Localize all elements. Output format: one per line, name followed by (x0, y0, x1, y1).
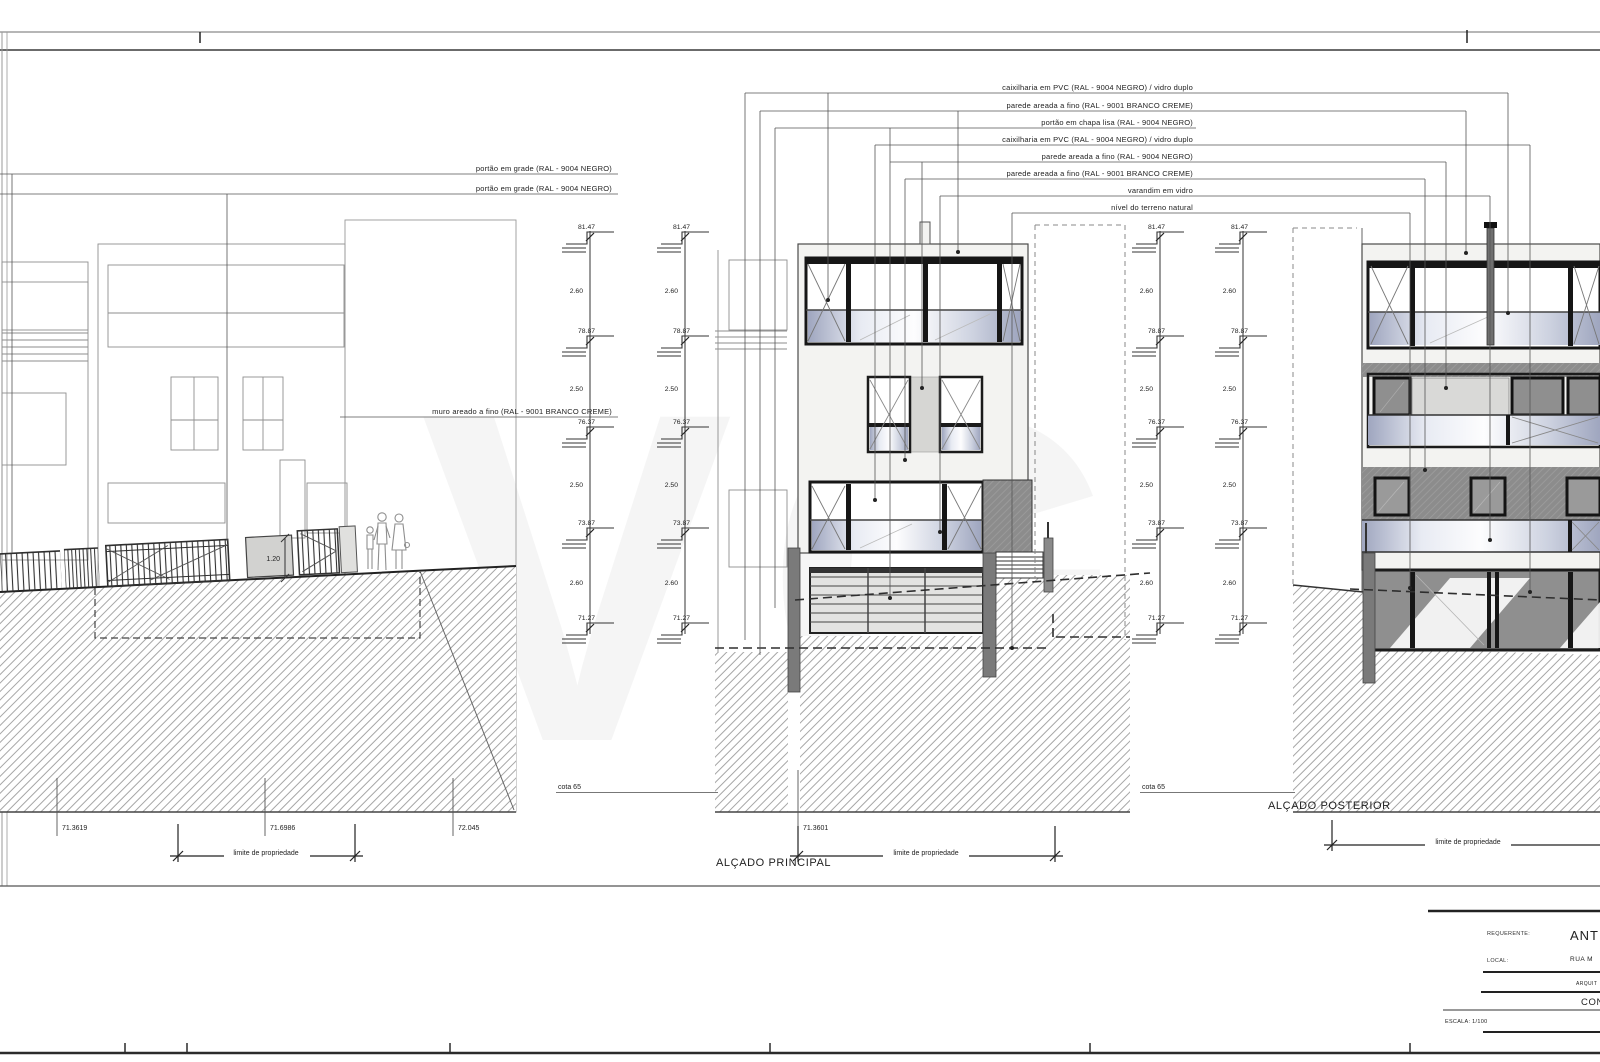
local-label: LOCAL: (1487, 958, 1509, 964)
fence-section (64, 548, 100, 589)
label-parede-creme-2: parede areada a fino (RAL - 9001 BRANCO … (1006, 169, 1193, 178)
elev-front: 71.3601 (803, 825, 828, 832)
front-garage-door (810, 568, 983, 633)
rear-elevation-title: ALÇADO POSTERIOR (1268, 800, 1391, 812)
label-terreno: nível do terreno natural (1111, 203, 1193, 212)
rear-top-window (1368, 262, 1600, 348)
front-first-floor-window (810, 482, 983, 552)
label-portao-chapa: portão em chapa lisa (RAL - 9004 NEGRO) (1041, 118, 1193, 127)
drawing-sheet: 81.47 78.87 76.37 73.87 71.27 (0, 0, 1600, 1062)
front-mid-windows (868, 377, 982, 452)
front-elevation-title: ALÇADO PRINCIPAL (716, 857, 831, 869)
requerente-value: ANT (1570, 928, 1599, 943)
fence-section (0, 551, 62, 592)
rear-small-window (1567, 478, 1600, 515)
rear-ground-glazing (1373, 570, 1600, 650)
rear-panel-light (1412, 378, 1509, 415)
limite-front: limite de propriedade (893, 850, 958, 857)
gate-pillar (339, 526, 357, 573)
front-post (1044, 538, 1053, 592)
label-muro: muro areado a fino (RAL - 9001 BRANCO CR… (432, 407, 612, 416)
rear-top-varandim-glass (1370, 312, 1600, 345)
label-caixilharia-2: caixilharia em PVC (RAL - 9004 NEGRO) / … (1002, 135, 1193, 144)
label-portao-grade-2: portão em grade (RAL - 9004 NEGRO) (476, 184, 612, 193)
rear-varandim-glass-2 (1362, 520, 1600, 552)
label-portao-grade-1: portão em grade (RAL - 9004 NEGRO) (476, 164, 612, 173)
front-chimney (920, 222, 930, 244)
rear-first-floor (1362, 467, 1600, 552)
datum-cota-rear: cota 65 (1142, 784, 1165, 791)
arquitetura-fragment: ARQUIT (1576, 981, 1597, 987)
elev-left-3: 72.045 (458, 825, 480, 832)
limite-left: limite de propriedade (233, 850, 298, 857)
front-pier-left (788, 548, 800, 692)
datum-cota-front: cota 65 (558, 784, 581, 791)
local-value: RUA M (1570, 956, 1593, 963)
elev-left-2: 71.6986 (270, 825, 295, 832)
rear-pier (1363, 553, 1375, 683)
rear-varandim-glass (1368, 415, 1600, 445)
label-varandim: varandim em vidro (1128, 186, 1193, 195)
label-parede-creme-1: parede areada a fino (RAL - 9001 BRANCO … (1006, 101, 1193, 110)
requerente-label: REQUERENTE: (1487, 931, 1530, 937)
label-parede-negro: parede areada a fino (RAL - 9004 NEGRO) (1042, 152, 1194, 161)
elev-left-1: 71.3619 (62, 825, 87, 832)
front-pier-right (983, 553, 996, 677)
rear-window-dark (1512, 378, 1563, 415)
rear-window-dark (1568, 378, 1600, 415)
ground-hatch (0, 566, 516, 812)
front-top-window (806, 258, 1022, 344)
scale-value: ESCALA: 1/100 (1445, 1019, 1487, 1025)
front-mid-panel (910, 377, 940, 452)
construcao-fragment: CONS (1581, 997, 1600, 1008)
gate-height-value: 1.20 (266, 556, 280, 563)
label-caixilharia-1: caixilharia em PVC (RAL - 9004 NEGRO) / … (1002, 83, 1193, 92)
rear-second-floor (1362, 363, 1600, 447)
limite-rear: limite de propriedade (1435, 839, 1500, 846)
